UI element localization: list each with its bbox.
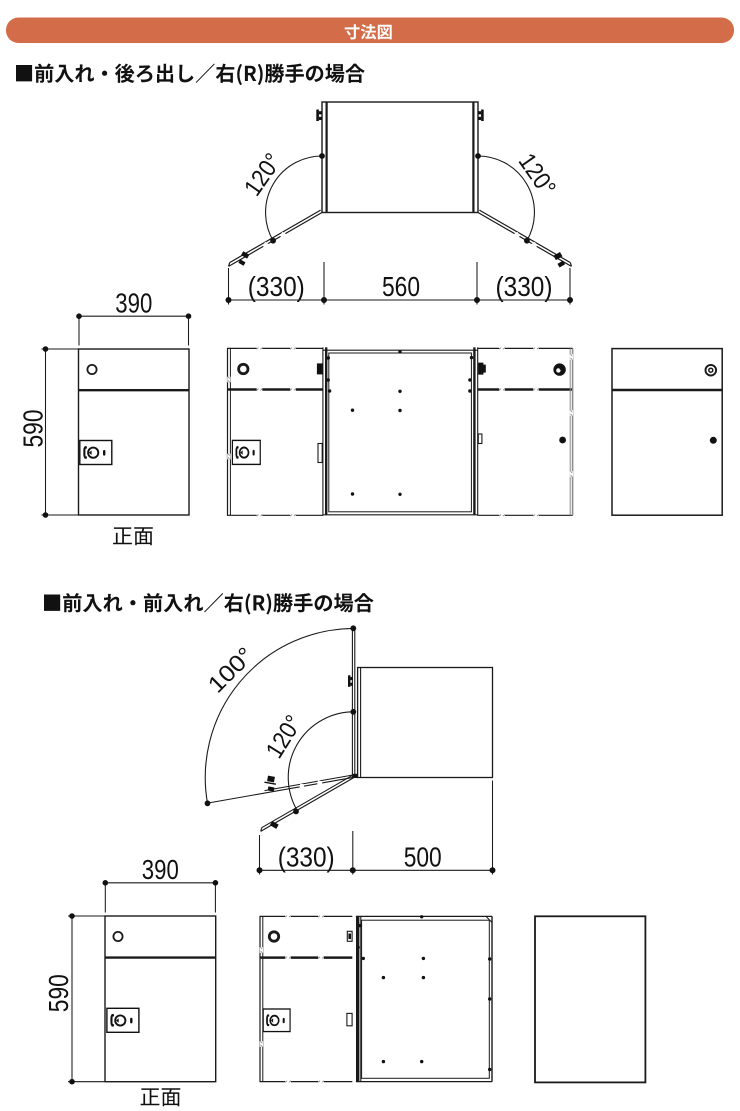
svg-text:590: 590 bbox=[43, 974, 74, 1012]
svg-text:390: 390 bbox=[142, 854, 179, 885]
svg-text:560: 560 bbox=[382, 271, 420, 302]
svg-text:(330): (330) bbox=[496, 271, 553, 302]
svg-text:(330): (330) bbox=[248, 271, 305, 302]
svg-text:390: 390 bbox=[115, 287, 152, 318]
svg-text:590: 590 bbox=[18, 410, 49, 448]
svg-text:(330): (330) bbox=[278, 841, 335, 872]
svg-text:500: 500 bbox=[404, 841, 442, 872]
